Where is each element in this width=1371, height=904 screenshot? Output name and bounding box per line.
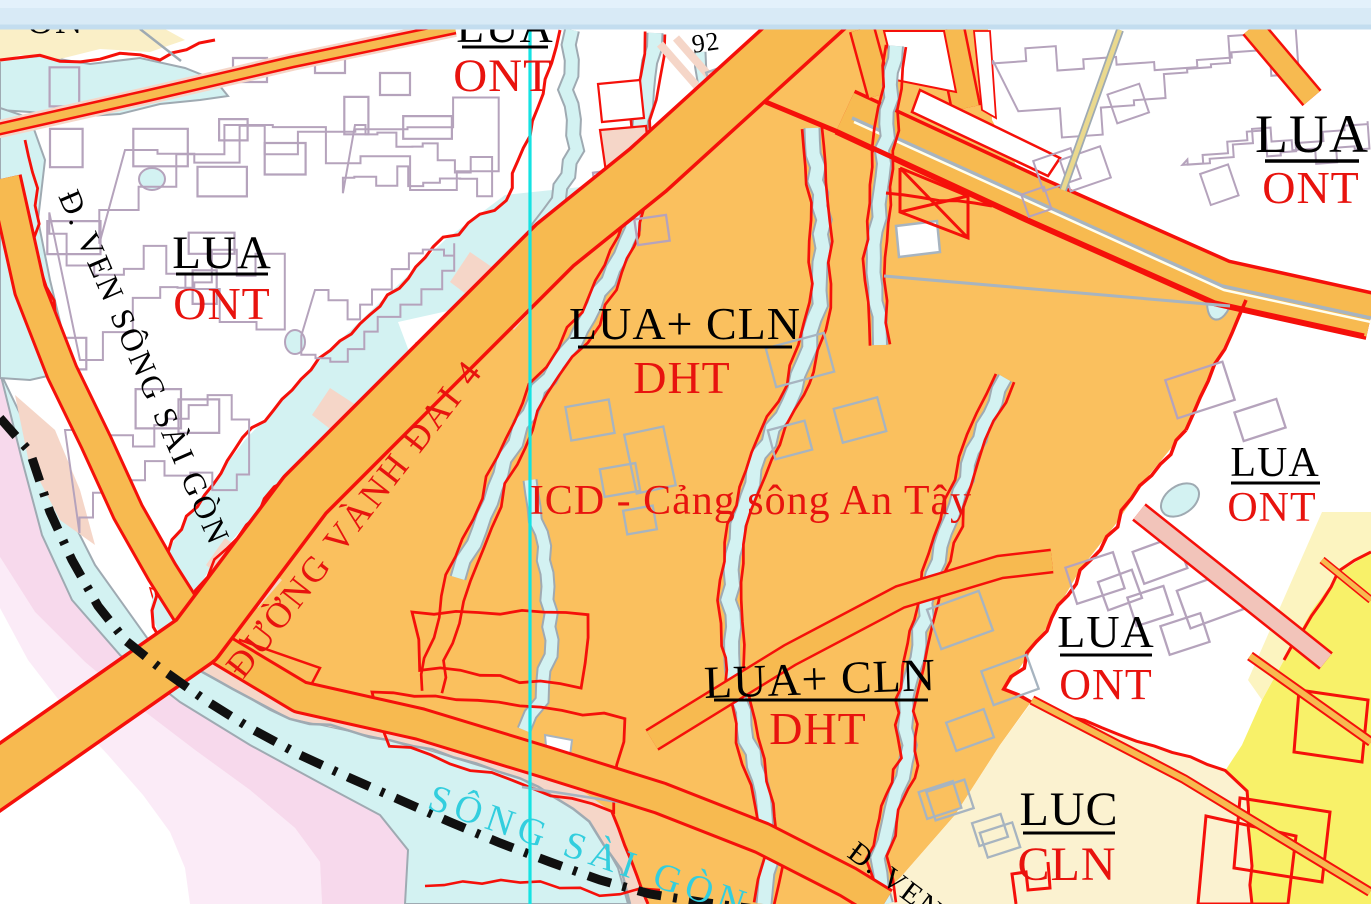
svg-text:LUA: LUA: [1230, 440, 1319, 486]
svg-text:ONT: ONT: [1262, 162, 1360, 213]
svg-text:DHT: DHT: [633, 352, 731, 403]
svg-text:LUA: LUA: [172, 227, 272, 279]
svg-text:LUA: LUA: [1255, 104, 1369, 164]
svg-text:ICD - Cảng sông An Tây: ICD - Cảng sông An Tây: [530, 478, 972, 524]
svg-text:ONT: ONT: [453, 50, 553, 102]
svg-text:ONT: ONT: [173, 278, 271, 329]
svg-text:ONT: ONT: [1227, 485, 1316, 531]
svg-text:92: 92: [690, 26, 722, 59]
svg-text:LUA+ CLN: LUA+ CLN: [569, 298, 801, 349]
svg-text:LUA: LUA: [1057, 606, 1155, 657]
svg-text:CLN: CLN: [1018, 838, 1117, 891]
svg-text:DHT: DHT: [769, 703, 867, 754]
svg-text:LUC: LUC: [1020, 783, 1119, 836]
svg-text:ONT: ONT: [1059, 660, 1152, 709]
